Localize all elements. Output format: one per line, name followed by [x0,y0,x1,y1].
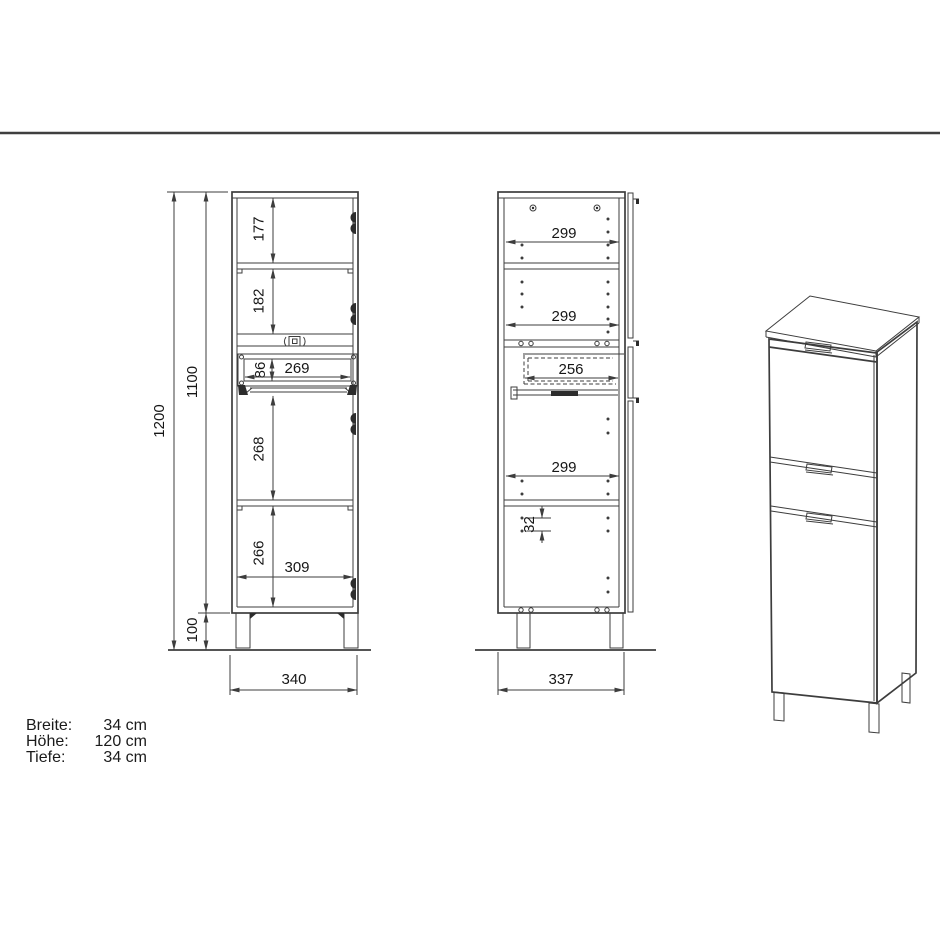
dim-top-compartment: 177 [251,216,268,241]
dim-overall-width: 340 [281,671,306,688]
spec-label: Höhe: [26,734,69,750]
side-view: 299 299 256 299 32 337 [475,192,656,695]
side-shelf-pin-holes [521,218,610,594]
spec-row-depth: Tiefe: 34 cm [26,750,147,766]
spec-row-width: Breite: 34 cm [26,718,147,734]
dim-drawer-opening-height: 86 [252,362,269,379]
spec-label: Tiefe: [26,750,65,766]
dim-carcass-height: 1100 [184,366,201,398]
side-legs [475,613,656,650]
cabinet-front-dividers [770,355,877,701]
spec-row-height: Höhe: 120 cm [26,734,147,750]
dim-third-compartment: 268 [251,436,268,461]
spec-value: 34 cm [103,718,147,734]
side-carcass [498,192,625,613]
cabinet-side-face [877,322,917,703]
dim-bottom-compartment: 266 [251,540,268,565]
dim-shelf-hole-pitch: 32 [521,516,538,533]
cabinet-top-slab [766,296,919,362]
front-drawer-handle-icon [284,337,305,347]
front-view: 1200 1100 100 177 182 86 269 268 266 309… [151,192,371,695]
spec-label: Breite: [26,718,72,734]
dim-top-shelf-depth: 299 [551,225,576,242]
cabinet-legs [774,673,910,733]
dim-middle-shelf-depth: 299 [551,308,576,325]
dim-leg-height: 100 [184,617,201,642]
dim-overall-depth: 337 [548,671,573,688]
front-dimensions: 1200 1100 100 177 182 86 269 268 266 309… [151,192,357,695]
spec-value: 34 cm [103,750,147,766]
dim-drawer-opening-width: 269 [284,360,309,377]
spec-value: 120 cm [95,734,147,750]
dim-interior-width: 309 [284,559,309,576]
technical-drawing-canvas: 1200 1100 100 177 182 86 269 268 266 309… [0,0,940,940]
side-door-panels [628,193,639,612]
dimensions-summary: Breite: 34 cm Höhe: 120 cm Tiefe: 34 cm [26,718,147,766]
door-handle-icons [805,342,833,524]
perspective-view [766,296,919,733]
dim-overall-height: 1200 [151,404,168,437]
dim-second-compartment: 182 [251,288,268,313]
dim-drawer-depth: 256 [558,361,583,378]
dim-lower-shelf-depth: 299 [551,459,576,476]
